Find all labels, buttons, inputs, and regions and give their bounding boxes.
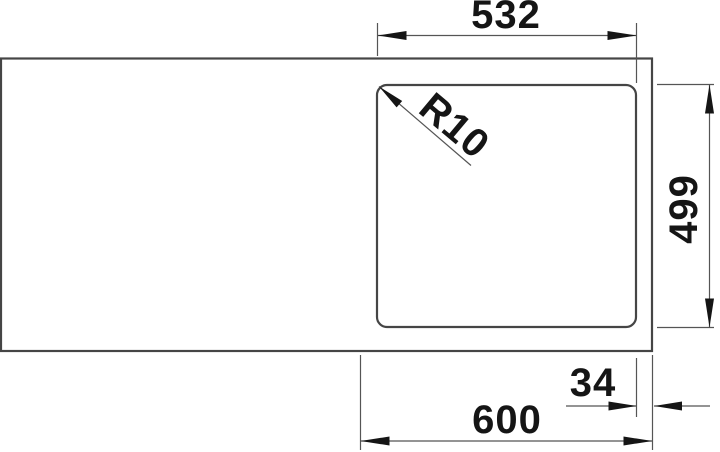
arrowhead-down-icon <box>705 299 714 328</box>
dimension-label-bowl-width: 532 <box>471 0 541 37</box>
arrowhead-right-icon <box>608 31 637 40</box>
arrowhead-right-icon <box>624 437 653 446</box>
dimension-edge-offset: 34 <box>566 355 710 450</box>
dimension-corner-radius: R10 <box>379 85 498 168</box>
dimension-bowl-width: 532 <box>378 0 637 83</box>
arrowhead-up-icon <box>705 85 714 114</box>
dimension-label-cabinet-width: 600 <box>472 398 542 442</box>
sink-outline <box>1 59 652 352</box>
arrowhead-left-icon <box>378 31 407 40</box>
dimension-label-edge-offset: 34 <box>570 361 617 405</box>
arrowhead-leader-icon <box>379 87 402 108</box>
technical-drawing-canvas: 532 R10 499 34 600 <box>0 0 720 452</box>
dimension-label-bowl-depth: 499 <box>662 174 706 244</box>
arrowhead-left-icon <box>654 402 682 411</box>
dimension-label-corner-radius: R10 <box>411 85 498 168</box>
arrowhead-left-icon <box>361 437 390 446</box>
dimension-bowl-depth: 499 <box>657 85 714 328</box>
